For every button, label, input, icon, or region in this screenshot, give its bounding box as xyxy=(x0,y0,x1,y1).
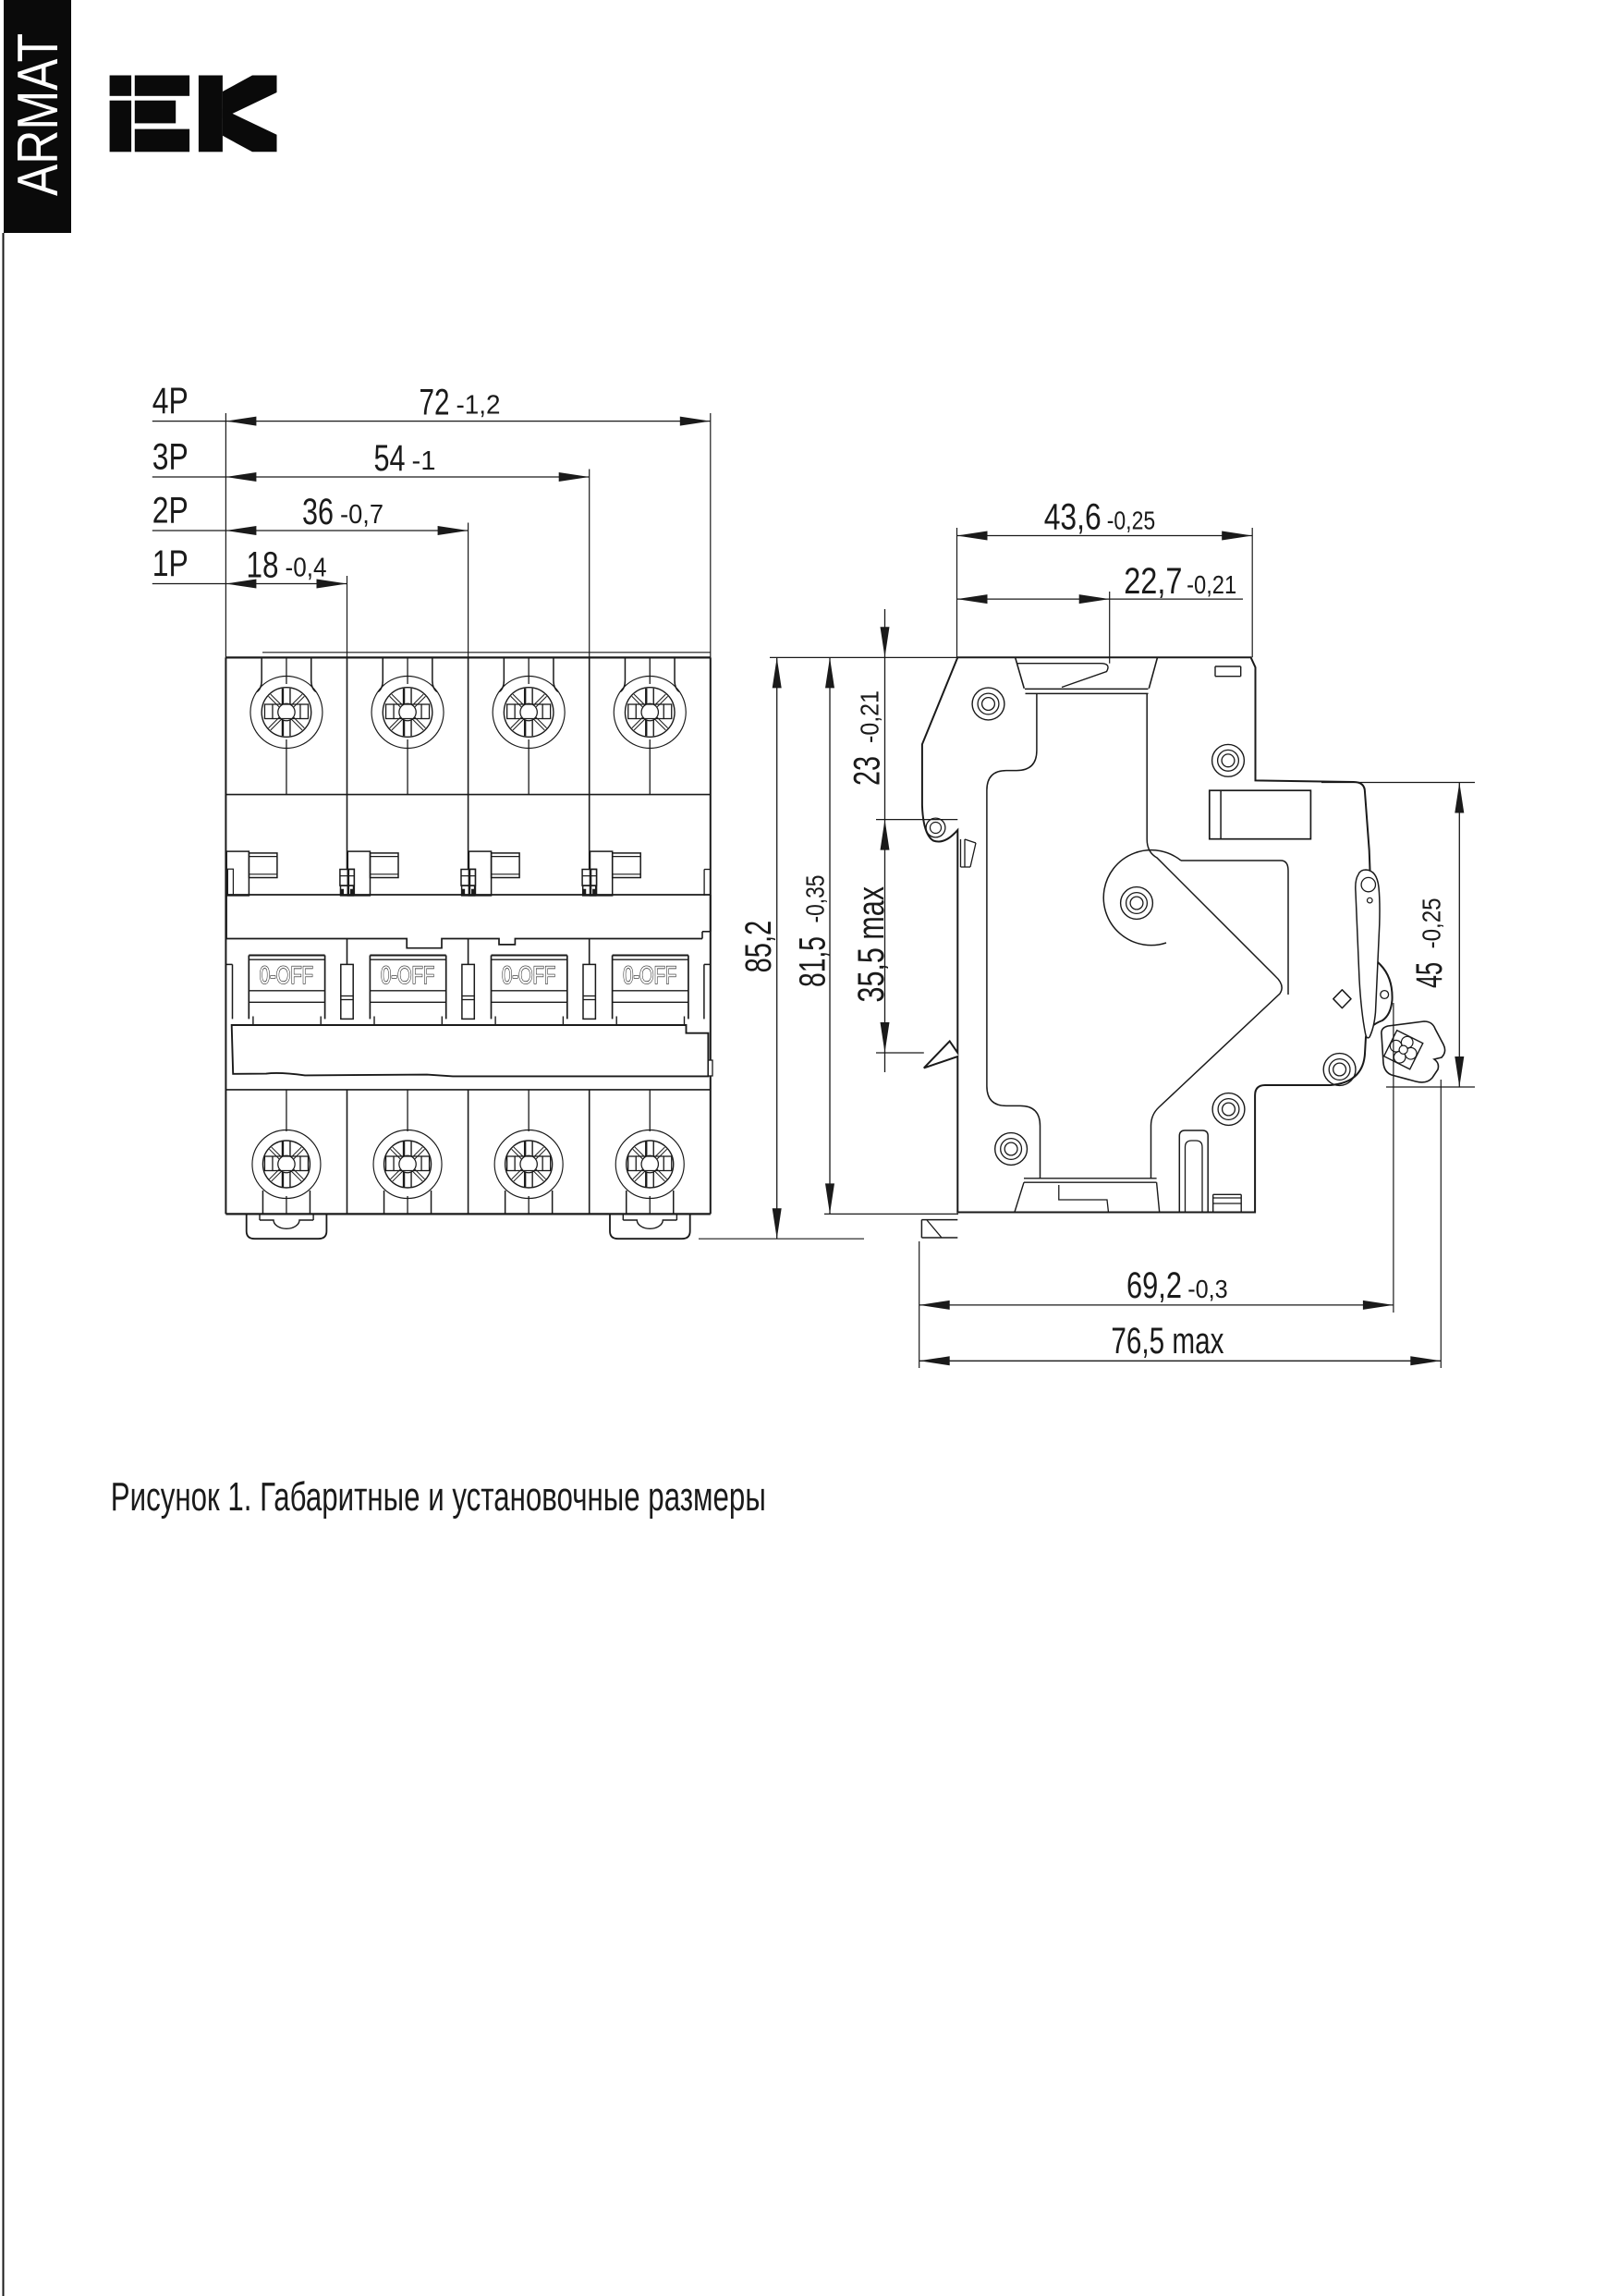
svg-text:85,2: 85,2 xyxy=(738,921,779,973)
svg-text:-0,25: -0,25 xyxy=(1107,507,1156,535)
svg-text:43,6: 43,6 xyxy=(1044,497,1102,538)
svg-text:0-OFF: 0-OFF xyxy=(260,961,313,989)
svg-text:72: 72 xyxy=(420,383,450,423)
svg-text:-1: -1 xyxy=(412,446,436,476)
svg-text:-0,21: -0,21 xyxy=(856,690,884,743)
svg-text:18: 18 xyxy=(247,545,279,586)
svg-text:4P: 4P xyxy=(152,381,189,421)
svg-text:35,5 max: 35,5 max xyxy=(851,886,892,1003)
svg-text:1P: 1P xyxy=(152,543,189,584)
svg-text:22,7: 22,7 xyxy=(1124,561,1182,602)
svg-text:-0,21: -0,21 xyxy=(1187,570,1236,599)
svg-text:54: 54 xyxy=(374,438,406,479)
svg-text:0-OFF: 0-OFF xyxy=(381,961,434,989)
svg-text:ARMAT: ARMAT xyxy=(6,33,70,196)
svg-text:69,2: 69,2 xyxy=(1126,1265,1182,1306)
svg-text:36: 36 xyxy=(302,492,334,532)
svg-text:-1,2: -1,2 xyxy=(456,391,501,421)
svg-text:23: 23 xyxy=(847,756,888,786)
svg-text:-0,4: -0,4 xyxy=(286,554,327,583)
svg-text:Рисунок 1. Габаритные и устано: Рисунок 1. Габаритные и установочные раз… xyxy=(111,1474,766,1520)
svg-text:3P: 3P xyxy=(152,437,189,478)
svg-text:0-OFF: 0-OFF xyxy=(502,961,555,989)
svg-text:45: 45 xyxy=(1409,962,1450,988)
svg-text:-0,7: -0,7 xyxy=(340,500,383,530)
svg-text:76,5 max: 76,5 max xyxy=(1111,1321,1223,1362)
svg-text:-0,35: -0,35 xyxy=(801,875,830,923)
svg-text:81,5: 81,5 xyxy=(793,936,834,987)
svg-text:-0,25: -0,25 xyxy=(1418,898,1446,948)
svg-text:2P: 2P xyxy=(152,491,189,531)
svg-text:-0,3: -0,3 xyxy=(1187,1275,1228,1303)
svg-text:0-OFF: 0-OFF xyxy=(623,961,676,989)
